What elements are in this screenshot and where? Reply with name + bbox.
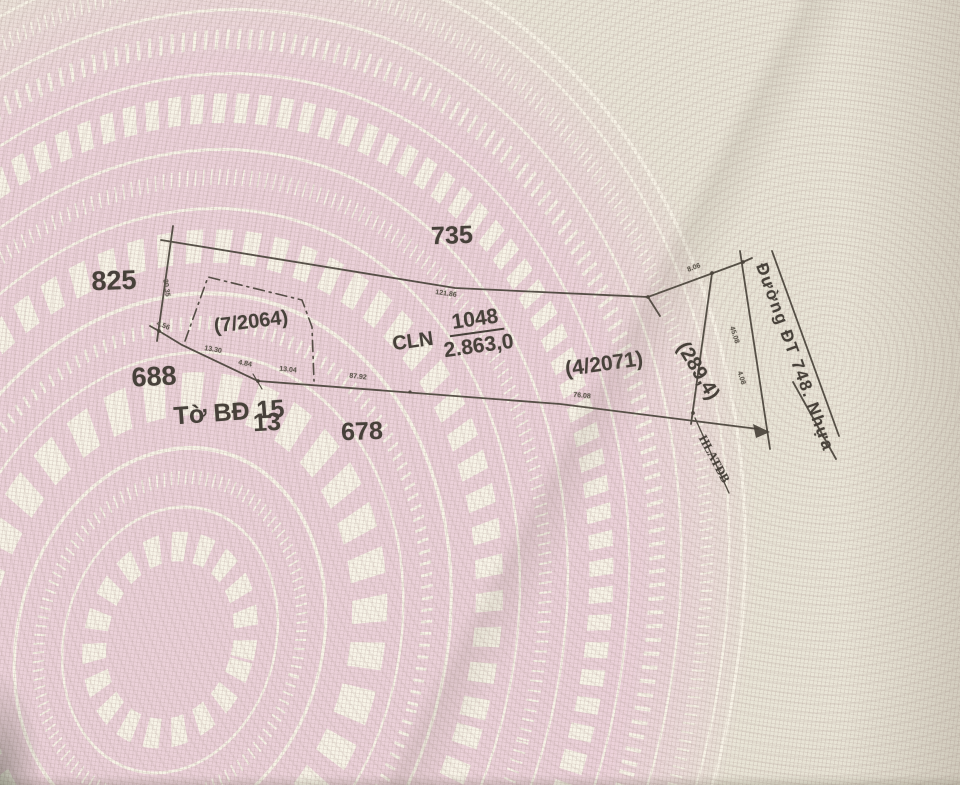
edge-measurement: 4.08 [736, 370, 747, 385]
vertex-dot [256, 379, 260, 383]
edge-measurement: 30.35 [161, 279, 170, 297]
scanned-land-certificate-page: 735 825 688 13 678 Tờ BĐ 15 CLN 1048 2.8… [0, 0, 960, 785]
vertex-dot [691, 411, 695, 415]
corner-tick [648, 297, 660, 316]
edge-measurement: 76.08 [573, 392, 591, 401]
parcel-label-group: CLN 1048 2.863,0 [389, 304, 515, 368]
subparcel-reference-right: (4/2071) [564, 348, 644, 380]
adjacent-parcel-top: 735 [431, 223, 474, 249]
road-name-label: Đường ĐT 748. Nhựa [753, 261, 837, 454]
vertex-dot [646, 295, 650, 299]
vertex-dot [710, 271, 714, 275]
adjacent-parcel-left-bottom: 688 [131, 362, 177, 391]
edge-measurement: 8.06 [686, 262, 701, 273]
edge-measurement: 13.04 [279, 366, 297, 375]
adjacent-parcel-left-top: 825 [91, 267, 137, 296]
edge-measurement: 4.84 [238, 359, 253, 368]
vertex-dot [408, 390, 411, 393]
edge-measurement: 13.30 [204, 345, 222, 355]
parcel-number-area-fraction: 1048 2.863,0 [439, 304, 515, 361]
corridor-area-label: (289,4) [673, 339, 723, 404]
edge-measurement: 4.56 [155, 320, 170, 332]
vertex-dot [157, 329, 161, 333]
road-safety-corridor-label: HLATĐB [696, 433, 731, 485]
subparcel-reference-left: (7/2064) [213, 308, 289, 337]
edge-measurement: 121.86 [435, 289, 457, 299]
vertex-tick [253, 374, 262, 389]
land-use-code: CLN [391, 329, 434, 355]
edge-measurement: 45.08 [728, 326, 740, 345]
edge-measurement: 87.92 [349, 373, 367, 382]
vertex-dot [741, 260, 745, 264]
adjacent-parcel-bottom: 678 [341, 419, 384, 445]
boundary-arrowhead [753, 424, 770, 438]
